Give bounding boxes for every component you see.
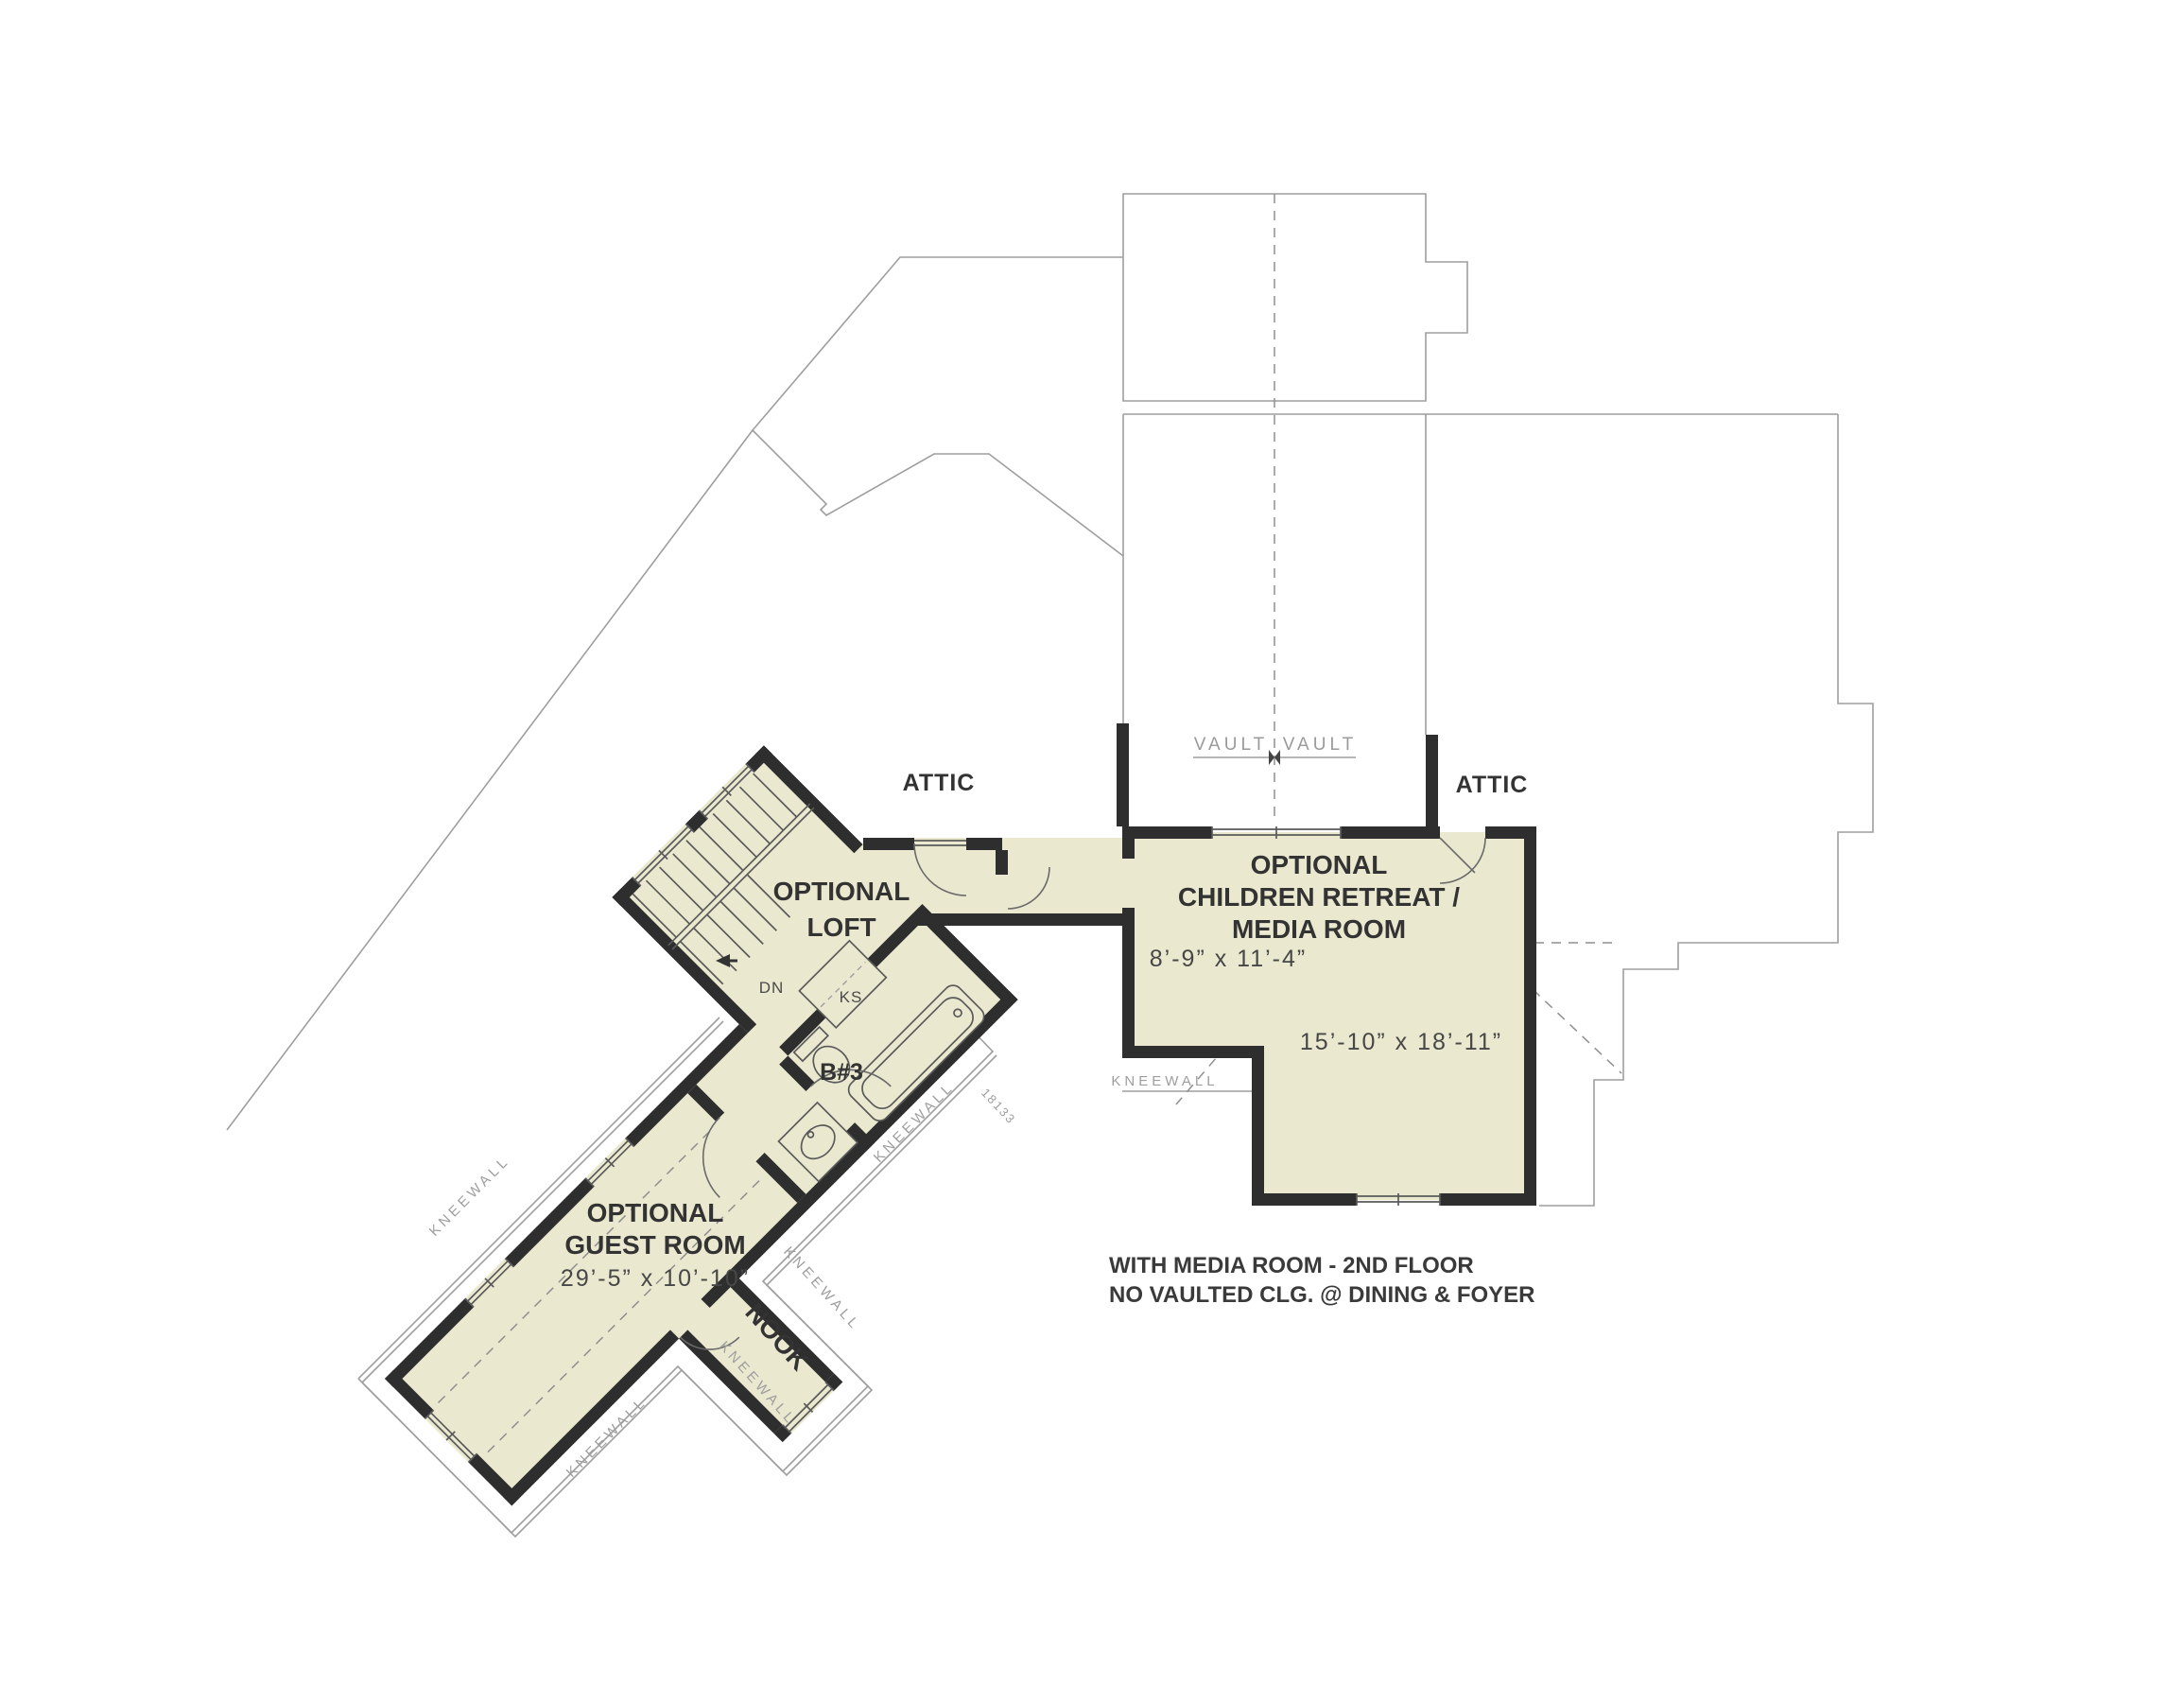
guest-dim: 29’-5” x 10’-10” xyxy=(561,1265,750,1292)
vault-label-left: VAULT xyxy=(1194,735,1268,755)
bath3-label: B#3 xyxy=(820,1059,863,1086)
guest-label-1: OPTIONAL xyxy=(587,1198,724,1227)
note-line-2: NO VAULTED CLG. @ DINING & FOYER xyxy=(1109,1282,1535,1308)
kneewall-label-nook-ne: KNEEWALL xyxy=(780,1243,863,1333)
attic-label-right: ATTIC xyxy=(1456,772,1529,798)
attic-label-left: ATTIC xyxy=(903,770,976,796)
vault-marker-icon xyxy=(1269,750,1274,765)
floor-plan-page: VAULT VAULT ATTIC ATTIC OPTIONAL LOFT OP… xyxy=(0,0,2184,1686)
dn-label: DN xyxy=(759,979,785,997)
children-label-1: OPTIONAL xyxy=(1251,850,1388,879)
plan-number-label: 18133 xyxy=(979,1086,1018,1127)
children-dim-main: 15’-10” x 18’-11” xyxy=(1300,1029,1502,1055)
children-label-3: MEDIA ROOM xyxy=(1232,914,1406,944)
guest-label-2: GUEST ROOM xyxy=(564,1230,745,1260)
ks-label: KS xyxy=(840,988,863,1006)
children-label-2: CHILDREN RETREAT / xyxy=(1178,882,1460,912)
note-line-1: WITH MEDIA ROOM - 2ND FLOOR xyxy=(1109,1253,1474,1278)
vault-marker-icon xyxy=(1274,750,1280,765)
children-dim-upper: 8’-9” x 11’-4” xyxy=(1150,946,1307,972)
vault-label-right: VAULT xyxy=(1283,735,1357,755)
kneewall-label-media: KNEEWALL xyxy=(1111,1073,1218,1089)
loft-label-1: OPTIONAL xyxy=(773,877,910,906)
second-floor-plan: VAULT VAULT ATTIC ATTIC OPTIONAL LOFT OP… xyxy=(0,0,2184,1686)
kneewall-label-nw: KNEEWALL xyxy=(426,1153,513,1240)
loft-label-2: LOFT xyxy=(806,913,875,942)
